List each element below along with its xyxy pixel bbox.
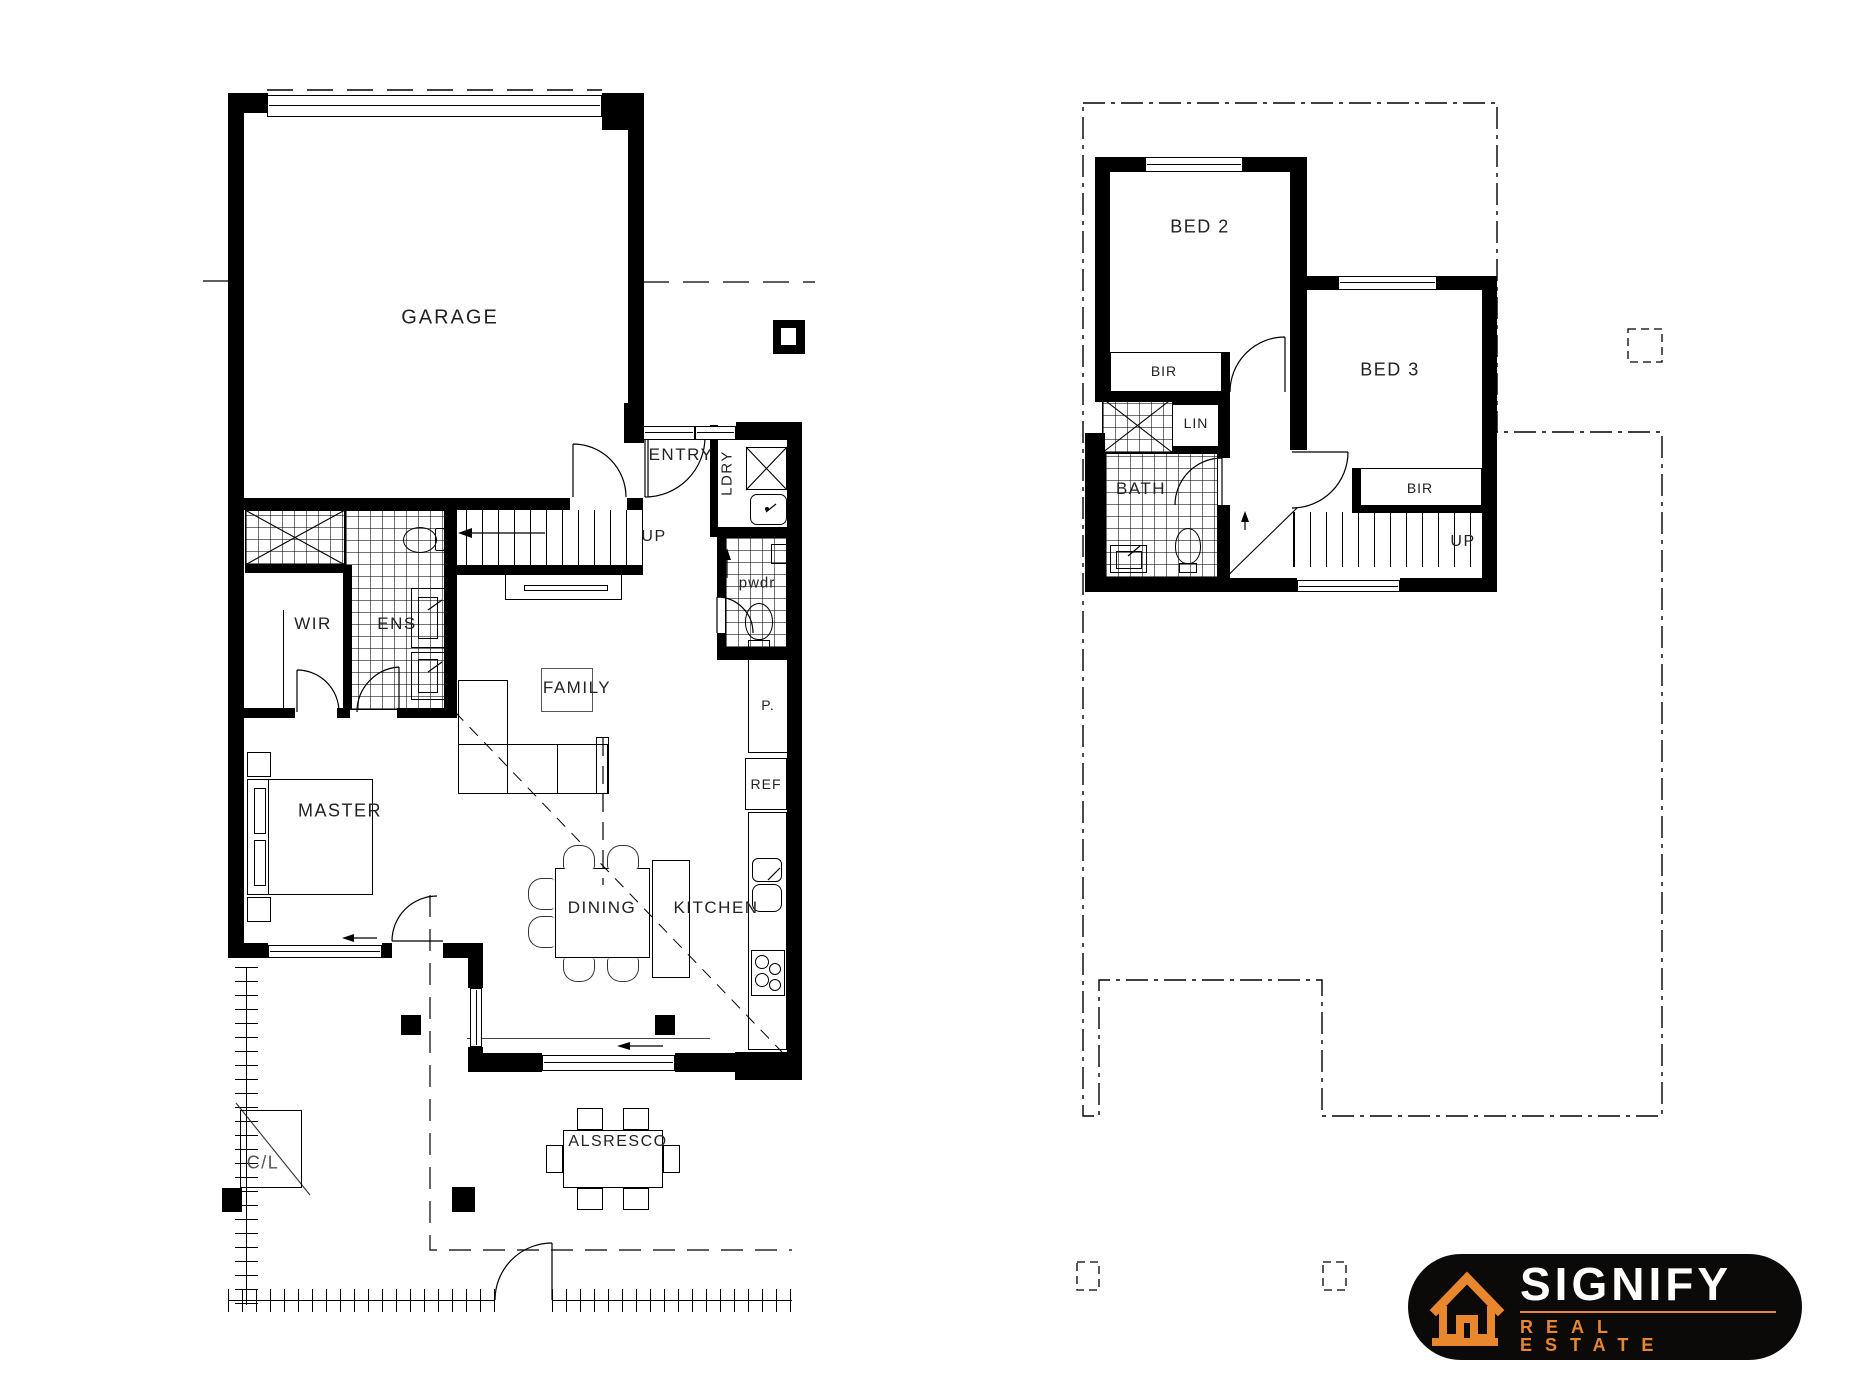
ens-toilet-tank: [435, 528, 445, 551]
fence-line: [228, 1300, 495, 1301]
burner: [755, 955, 769, 969]
room-label-bed2: BED 2: [1170, 217, 1230, 238]
room-label-garage: GARAGE: [401, 307, 499, 330]
cooktop: [751, 950, 785, 996]
logo-tagline: REAL ESTATE: [1520, 1318, 1776, 1354]
tv-screen: [524, 585, 608, 591]
arrowhead: [342, 934, 354, 942]
post-outline: [1323, 1262, 1346, 1290]
ens-shower-x: [245, 510, 345, 565]
alfresco-post: [655, 1015, 675, 1035]
porch-post-core: [781, 328, 796, 345]
wir-shelf-line: [283, 610, 284, 710]
label-linen: LIN: [1184, 415, 1209, 431]
arrowhead: [458, 528, 472, 538]
side-window: [470, 988, 482, 1047]
wall: [1218, 505, 1230, 580]
wall: [628, 110, 644, 410]
powder-toilet-bowl: [745, 603, 773, 640]
bath-vanity: [1110, 545, 1147, 573]
label-bir-bed2: BIR: [1151, 363, 1177, 379]
fence-post: [452, 1187, 475, 1212]
basin: [418, 597, 438, 639]
front-door-sill: [643, 426, 695, 440]
label-bir-bed3: BIR: [1407, 480, 1433, 496]
kitchen-bench: [748, 812, 787, 1050]
laundry-tub: [750, 494, 787, 525]
wall: [245, 565, 345, 573]
house-icon: [1424, 1264, 1510, 1350]
room-label-powder: pwdr: [739, 575, 776, 592]
wall: [710, 527, 790, 537]
dining-chair: [563, 845, 595, 869]
master-door-swing: [392, 896, 443, 941]
alfresco-post: [401, 1015, 421, 1035]
wall: [717, 648, 790, 660]
wall: [382, 943, 392, 958]
label-pantry: P.: [761, 697, 774, 713]
label-fridge: REF: [751, 776, 782, 792]
wall: [1352, 468, 1360, 507]
bedside-table: [247, 752, 271, 777]
alfresco-chair: [577, 1108, 603, 1130]
logo-text-block: SIGNIFY REAL ESTATE: [1520, 1261, 1776, 1354]
tv-cabinet: [505, 573, 622, 600]
dining-chair: [607, 958, 639, 982]
wall: [445, 498, 457, 717]
wall: [397, 708, 457, 718]
basin: [418, 659, 438, 693]
sofa-cushion-line: [507, 745, 508, 793]
alfresco-chair: [623, 1108, 649, 1130]
fence-post: [222, 1188, 242, 1212]
garage-door-swing: [573, 444, 626, 497]
sofa-arm: [596, 737, 609, 794]
floor-plan-canvas: GARAGE ENTRY LDRY UP pwdr WIR ENS FAMILY…: [0, 0, 1852, 1382]
signify-logo: SIGNIFY REAL ESTATE: [1408, 1254, 1802, 1360]
room-label-bed3: BED 3: [1360, 360, 1420, 381]
room-label-dining: DINING: [568, 898, 637, 918]
gate-swing: [495, 1243, 552, 1300]
laundry-window: [695, 426, 736, 440]
bath-toilet-bowl: [1175, 528, 1201, 564]
kitchen-sink-1: [752, 858, 782, 882]
basin: [1116, 551, 1142, 569]
post-outline: [1077, 1262, 1099, 1290]
drain: [765, 507, 769, 511]
wall: [1095, 157, 1110, 400]
upper-stairs-label-up: UP: [1450, 533, 1475, 551]
sofa-cushion-line: [557, 745, 558, 793]
room-label-ensuite: ENS: [377, 614, 416, 634]
logo-brand: SIGNIFY: [1520, 1261, 1776, 1307]
wall: [228, 93, 268, 113]
wall: [443, 943, 483, 958]
bed3-window: [1338, 276, 1437, 290]
alfresco-edge-line: [467, 1038, 710, 1039]
master-window: [268, 945, 382, 958]
alfresco-chair: [546, 1145, 563, 1173]
alfresco-chair: [577, 1188, 603, 1210]
sofa-seat: [458, 744, 608, 794]
dining-chair: [607, 845, 639, 869]
boundary-dash: [203, 281, 815, 282]
wall: [1222, 352, 1230, 402]
wall: [1290, 157, 1307, 450]
burner: [769, 963, 781, 975]
room-label-bath: BATH: [1116, 479, 1166, 499]
wall: [244, 708, 295, 718]
wall: [1218, 398, 1230, 458]
ens-vanity-2: [411, 652, 445, 700]
room-label-alfresco: ALSRESCO: [568, 1133, 667, 1151]
label-clothesline: C/L: [247, 1153, 280, 1174]
wall: [242, 498, 570, 510]
kitchen-island: [652, 860, 690, 978]
wall: [710, 425, 718, 537]
room-label-laundry: LDRY: [719, 450, 736, 496]
bath-toilet-tank: [1179, 563, 1197, 573]
clothesline-box: [240, 1110, 302, 1188]
ens-door-swing: [357, 667, 399, 712]
powder-basin: [771, 544, 787, 564]
wall: [450, 565, 643, 575]
wall: [1400, 578, 1497, 592]
logo-divider: [1520, 1311, 1776, 1313]
pillow: [254, 788, 266, 834]
wir-door-swing: [297, 670, 339, 712]
alfresco-chair: [623, 1188, 649, 1210]
room-label-entry: ENTRY: [649, 445, 714, 465]
wall: [343, 565, 352, 710]
bed3-door-swing: [1292, 452, 1348, 508]
washing-machine: [746, 447, 787, 490]
room-label-master: MASTER: [298, 801, 382, 822]
pillow-line: [268, 780, 269, 894]
wall: [468, 1047, 483, 1072]
stairs-label-up: UP: [641, 528, 666, 546]
pillow: [254, 840, 266, 886]
arrowhead: [617, 1042, 630, 1050]
wall: [1482, 276, 1497, 590]
wall: [1085, 433, 1105, 590]
wall: [624, 403, 644, 443]
stair-window: [1297, 580, 1400, 592]
porch-post: [773, 320, 805, 354]
wall: [717, 537, 725, 597]
wall: [735, 1052, 802, 1080]
wall: [787, 422, 802, 1072]
wall: [483, 1053, 542, 1072]
wall: [228, 943, 268, 958]
burner: [755, 973, 769, 987]
post-outline: [1628, 329, 1662, 362]
wall: [228, 93, 244, 958]
wall: [627, 498, 643, 510]
bath-shower-x: [1102, 398, 1173, 453]
arrowhead: [1241, 511, 1249, 522]
wall: [1293, 276, 1338, 290]
bath-door-swing: [1175, 458, 1222, 505]
wall: [675, 1053, 735, 1072]
upper-site-outline: [1083, 103, 1662, 1116]
bed2-door-swing: [1230, 337, 1285, 392]
bed2-window: [1145, 157, 1243, 172]
room-label-wir: WIR: [294, 614, 332, 634]
family-sliding-door: [542, 1055, 675, 1071]
room-label-family: FAMILY: [543, 678, 611, 698]
ens-toilet-bowl: [403, 527, 437, 553]
burner: [769, 979, 781, 991]
wall: [468, 958, 483, 988]
dining-chair: [528, 878, 554, 910]
wall: [337, 708, 350, 718]
room-label-kitchen: KITCHEN: [673, 898, 758, 918]
fence-line: [552, 1300, 792, 1301]
bedside-table: [247, 897, 271, 922]
dining-chair: [528, 916, 554, 948]
master-bed: [247, 779, 373, 895]
wall: [1085, 578, 1297, 592]
garage-door: [267, 95, 602, 117]
dining-chair: [563, 958, 595, 982]
wall: [1352, 505, 1482, 513]
